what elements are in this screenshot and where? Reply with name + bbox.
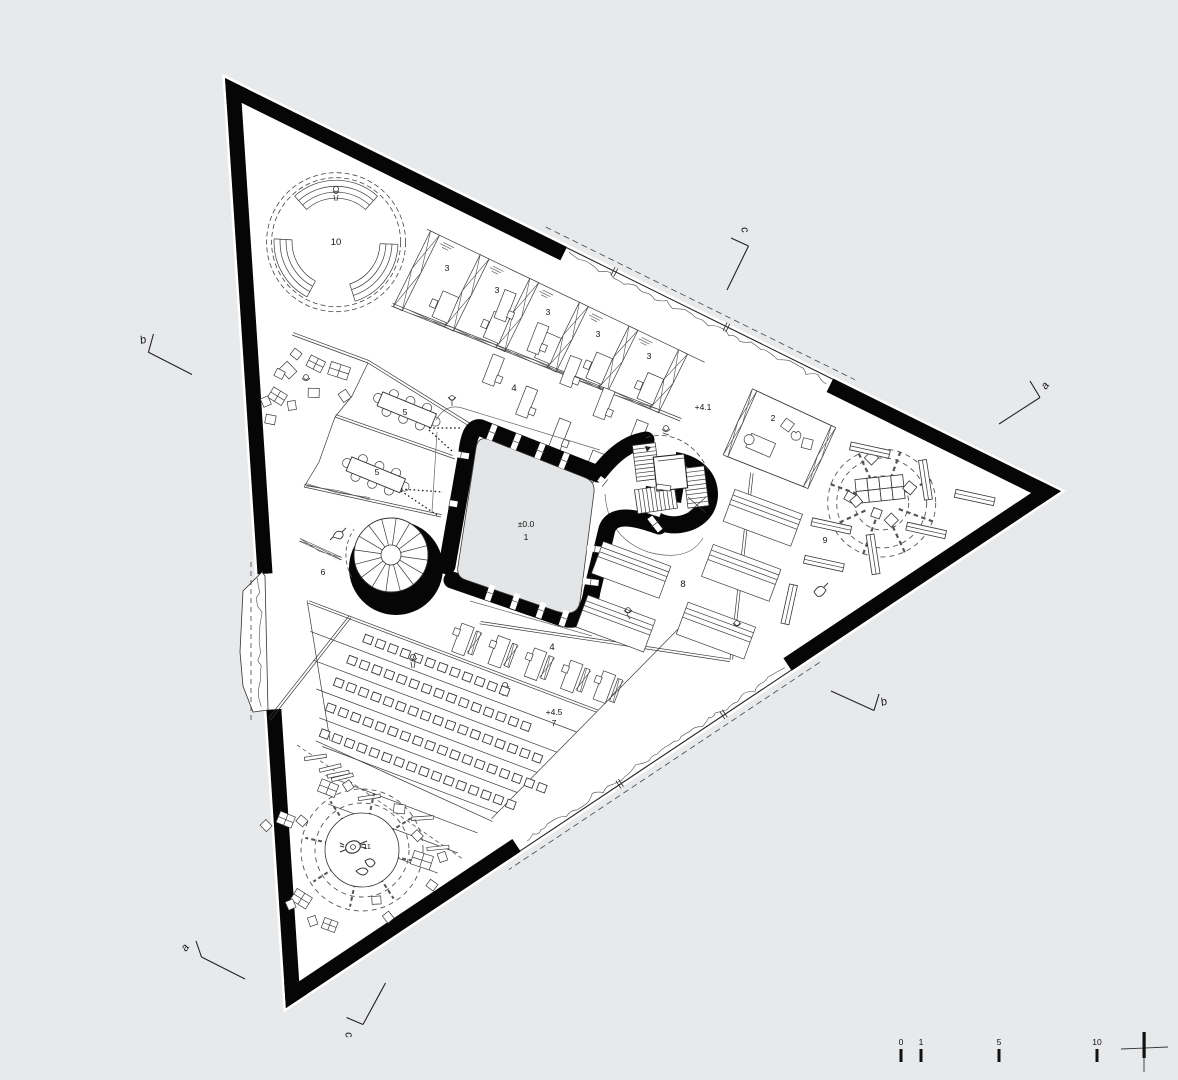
svg-text:10: 10 bbox=[331, 237, 342, 248]
svg-text:5: 5 bbox=[403, 407, 408, 417]
svg-text:9: 9 bbox=[823, 535, 828, 545]
svg-text:±0.0: ±0.0 bbox=[518, 519, 535, 529]
svg-text:3: 3 bbox=[647, 351, 652, 361]
svg-text:3: 3 bbox=[495, 285, 500, 295]
svg-text:+4.1: +4.1 bbox=[695, 402, 712, 412]
svg-text:+4.5: +4.5 bbox=[546, 707, 563, 717]
svg-text:5: 5 bbox=[997, 1037, 1002, 1047]
svg-text:4: 4 bbox=[511, 383, 516, 394]
svg-text:8: 8 bbox=[680, 579, 685, 590]
svg-text:3: 3 bbox=[596, 329, 601, 339]
svg-text:10: 10 bbox=[1092, 1037, 1102, 1047]
svg-text:2: 2 bbox=[771, 413, 776, 423]
svg-text:6: 6 bbox=[321, 567, 326, 577]
svg-text:0: 0 bbox=[899, 1037, 904, 1047]
svg-text:1: 1 bbox=[524, 532, 529, 542]
svg-text:7: 7 bbox=[552, 718, 557, 728]
svg-text:11: 11 bbox=[363, 842, 371, 851]
svg-text:4: 4 bbox=[549, 642, 554, 653]
svg-text:3: 3 bbox=[445, 263, 450, 273]
svg-text:3: 3 bbox=[546, 307, 551, 317]
svg-text:1: 1 bbox=[919, 1037, 924, 1047]
svg-text:5: 5 bbox=[375, 467, 380, 477]
